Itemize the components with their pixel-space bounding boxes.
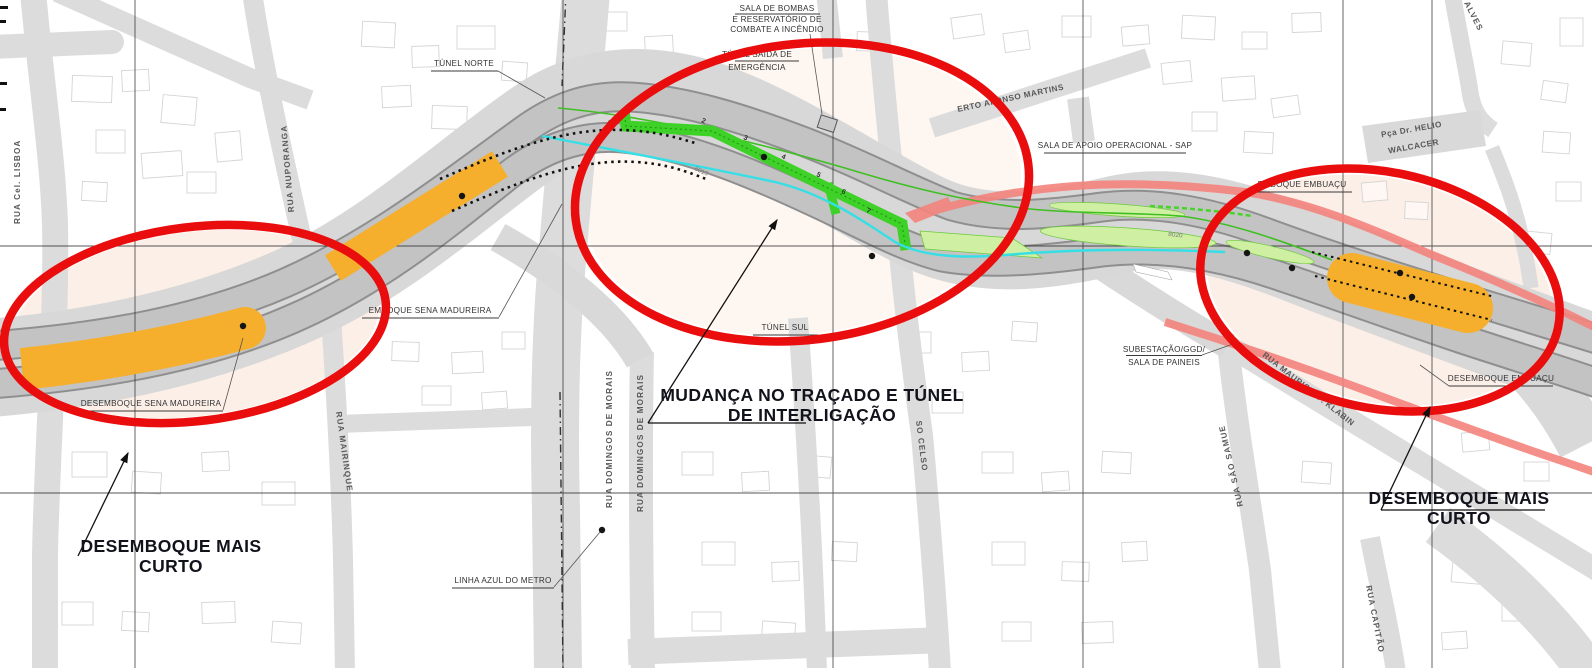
street-label-domingos-2: RUA DOMINGOS DE MORAIS	[636, 374, 645, 512]
map-shape	[240, 323, 246, 329]
map-shape	[1003, 30, 1030, 52]
map-shape	[1556, 182, 1581, 201]
map-shape	[831, 541, 857, 561]
map-shape	[951, 14, 985, 39]
map-shape	[502, 332, 525, 349]
map-shape	[187, 172, 216, 193]
map-shape	[1101, 451, 1131, 473]
callout-left-line2: CURTO	[139, 556, 203, 576]
map-shape	[982, 452, 1013, 473]
map-shape	[682, 452, 713, 475]
map-shape	[1271, 95, 1300, 118]
map-shape	[761, 154, 767, 160]
map-shape	[1244, 250, 1250, 256]
site-plan-page: 2 3 4 5 6 7 8010 8020 RUA Cel. LISBOA RU…	[0, 0, 1592, 668]
map-shape	[0, 6, 8, 9]
map-shape	[1082, 621, 1114, 643]
map-shape	[1062, 16, 1091, 37]
label-sala-bombas-1: SALA DE BOMBAS	[740, 4, 815, 13]
map-shape	[1501, 41, 1532, 66]
map-shape	[1361, 181, 1388, 202]
map-shape	[1409, 294, 1415, 300]
street-topmid-stub	[826, 0, 833, 58]
map-shape	[1524, 462, 1549, 481]
map-shape	[457, 26, 495, 49]
map-shape	[215, 131, 242, 162]
map-shape	[121, 69, 149, 91]
map-shape	[81, 181, 107, 201]
map-shape	[202, 451, 230, 471]
map-shape	[501, 61, 527, 82]
callout-left-line1: DESEMBOQUE MAIS	[80, 536, 261, 556]
map-shape	[1292, 12, 1322, 32]
label-sala-apoio: SALA DE APOIO OPERACIONAL - SAP	[1038, 141, 1193, 150]
label-desemboque-sena: DESEMBOQUE SENA MADUREIRA	[81, 399, 222, 408]
label-subestacao-1: SUBESTAÇÃO/GGD/	[1123, 344, 1206, 354]
map-shape	[1242, 32, 1267, 49]
map-shape	[131, 471, 161, 494]
street-mairinque	[330, 302, 345, 668]
map-shape	[1397, 270, 1403, 276]
map-shape	[0, 82, 7, 85]
map-shape	[381, 85, 411, 107]
callout-right-line1: DESEMBOQUE MAIS	[1368, 488, 1549, 508]
map-shape	[202, 601, 236, 623]
callout-center-line1: MUDANÇA NO TRAÇADO E TÚNEL	[660, 384, 963, 405]
label-desemboque-embuacu: DESEMBOQUE EMBUAÇU	[1448, 374, 1554, 383]
map-shape	[869, 253, 875, 259]
site-plan-map: 2 3 4 5 6 7 8010 8020 RUA Cel. LISBOA RU…	[0, 0, 1592, 668]
label-linha-azul: LINHA AZUL DO METRO	[454, 576, 551, 585]
map-shape	[742, 471, 770, 491]
map-shape	[1011, 321, 1037, 342]
map-shape	[1002, 622, 1031, 641]
street-bottom-mid	[628, 640, 945, 652]
map-shape	[141, 151, 183, 179]
street-sao-samuel	[1228, 344, 1270, 668]
map-shape	[1192, 112, 1217, 131]
map-shape	[459, 193, 465, 199]
map-shape	[361, 21, 395, 48]
map-shape	[1121, 25, 1150, 46]
map-shape	[1289, 265, 1295, 271]
map-shape	[1405, 201, 1429, 219]
label-subestacao-2: SALA DE PAINEIS	[1128, 358, 1200, 367]
callout-center-line2: DE INTERLIGAÇÃO	[728, 404, 896, 425]
map-shape	[1122, 541, 1148, 561]
map-shape	[262, 482, 295, 505]
map-shape	[1542, 131, 1570, 154]
map-shape	[161, 95, 197, 126]
map-shape	[451, 351, 483, 374]
street-cross-left	[338, 416, 560, 424]
map-shape	[962, 351, 990, 371]
map-shape	[121, 611, 149, 631]
label-tunel-sul: TÚNEL SUL	[762, 322, 809, 332]
label-sala-bombas-3: COMBATE A INCÊNDIO	[730, 24, 824, 34]
map-shape	[0, 108, 6, 111]
map-shape	[62, 602, 93, 625]
map-shape	[772, 562, 800, 582]
orange-desemboque-embuacu	[1352, 278, 1468, 308]
street-label-domingos-1: RUA DOMINGOS DE MORAIS	[605, 370, 614, 508]
map-shape	[481, 391, 507, 410]
map-shape	[1441, 631, 1467, 650]
map-shape	[422, 386, 451, 405]
map-shape	[992, 542, 1025, 565]
map-shape	[1221, 76, 1256, 101]
map-shape	[0, 20, 6, 23]
map-shape	[1041, 471, 1069, 492]
map-shape	[271, 621, 301, 644]
label-tunel-emergencia-2: EMERGÊNCIA	[728, 62, 786, 72]
street-top-stub	[0, 42, 112, 47]
map-shape	[692, 612, 721, 631]
map-shape	[1301, 461, 1331, 484]
map-shape	[72, 452, 107, 477]
callout-right-line2: CURTO	[1427, 508, 1491, 528]
map-shape	[1243, 131, 1273, 153]
map-shape	[96, 130, 125, 153]
map-shape	[1560, 18, 1583, 46]
map-shape	[1161, 60, 1192, 84]
map-shape	[1181, 15, 1215, 40]
map-shape	[1062, 562, 1090, 582]
map-shape	[392, 342, 420, 362]
street-label-cel-lisboa: RUA Cel. LISBOA	[13, 140, 22, 224]
map-shape	[702, 542, 735, 565]
label-tunel-norte: TÚNEL NORTE	[434, 58, 494, 68]
map-shape	[1541, 80, 1568, 102]
map-shape	[72, 75, 113, 102]
label-sala-bombas-2: E RESERVATÓRIO DE	[732, 14, 822, 24]
